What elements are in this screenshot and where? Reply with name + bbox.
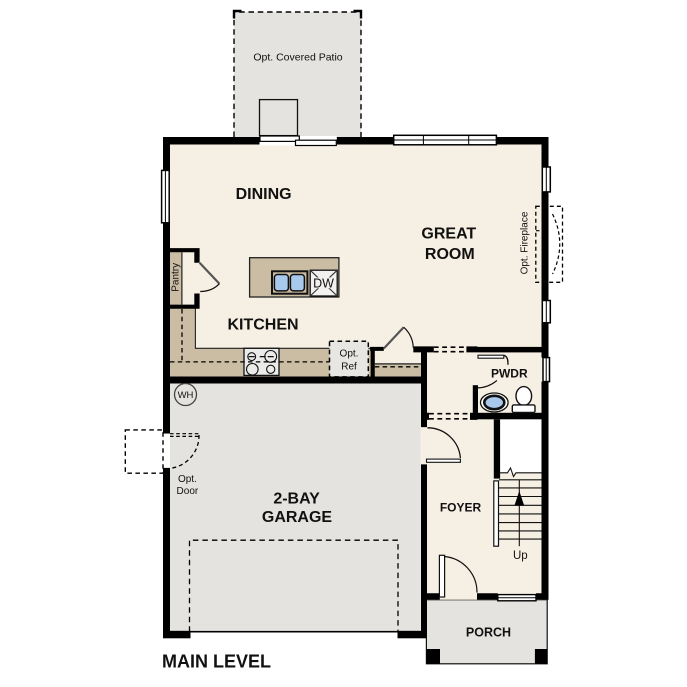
svg-text:GREAT: GREAT xyxy=(421,225,476,242)
svg-text:DW: DW xyxy=(313,276,334,290)
svg-text:Opt. Fireplace: Opt. Fireplace xyxy=(520,211,531,274)
svg-text:Pantry: Pantry xyxy=(170,263,181,292)
svg-text:KITCHEN: KITCHEN xyxy=(227,317,298,334)
svg-text:Door: Door xyxy=(177,486,199,497)
svg-text:PORCH: PORCH xyxy=(466,625,511,639)
svg-text:PWDR: PWDR xyxy=(491,367,528,381)
svg-text:ROOM: ROOM xyxy=(425,246,475,263)
svg-text:Up: Up xyxy=(513,550,528,562)
svg-text:GARAGE: GARAGE xyxy=(262,509,333,526)
svg-text:FOYER: FOYER xyxy=(440,501,482,515)
svg-text:DINING: DINING xyxy=(236,186,292,203)
svg-text:Opt.: Opt. xyxy=(340,348,359,359)
svg-text:Opt. Covered Patio: Opt. Covered Patio xyxy=(253,52,342,64)
svg-text:Ref: Ref xyxy=(341,361,357,372)
svg-text:WH: WH xyxy=(178,390,194,401)
svg-text:Opt.: Opt. xyxy=(178,474,197,485)
svg-text:MAIN LEVEL: MAIN LEVEL xyxy=(162,652,271,672)
svg-text:2-BAY: 2-BAY xyxy=(273,490,320,507)
